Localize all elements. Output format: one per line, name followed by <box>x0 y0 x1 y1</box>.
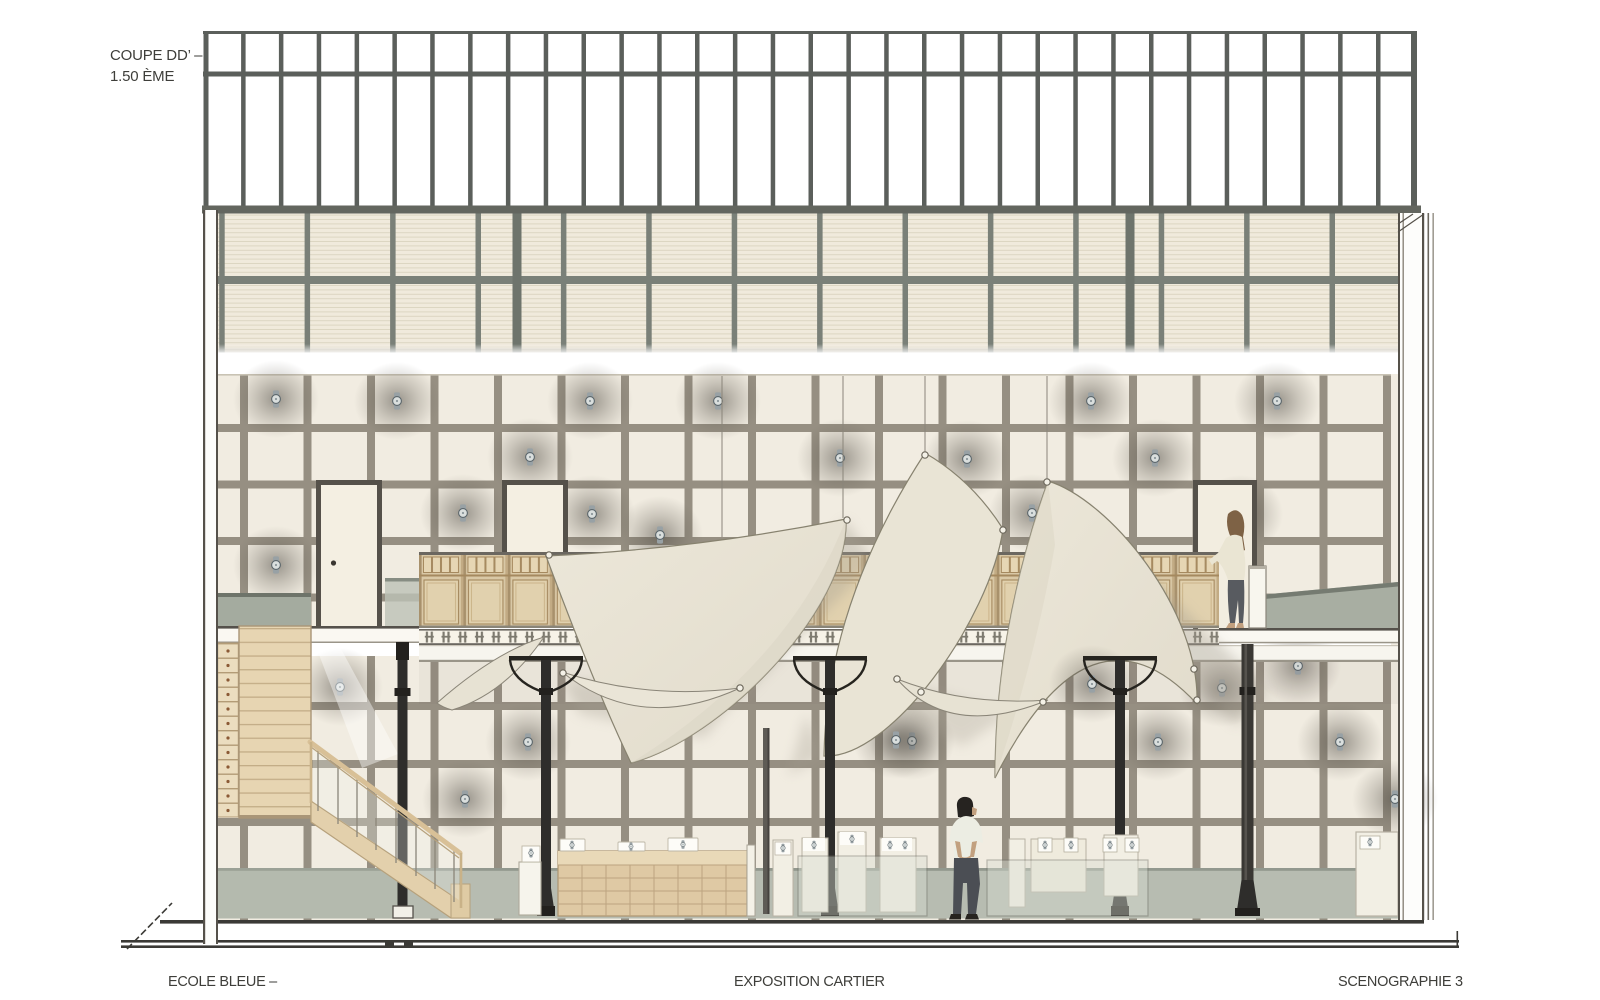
svg-text:SCENOGRAPHIE 3: SCENOGRAPHIE 3 <box>1338 974 1463 990</box>
svg-text:EXPOSITION CARTIER: EXPOSITION CARTIER <box>734 974 885 990</box>
svg-text:COUPE DD’ –: COUPE DD’ – <box>110 47 203 64</box>
svg-text:ECOLE BLEUE –: ECOLE BLEUE – <box>168 974 278 990</box>
svg-text:1.50 ÈME: 1.50 ÈME <box>110 68 174 85</box>
